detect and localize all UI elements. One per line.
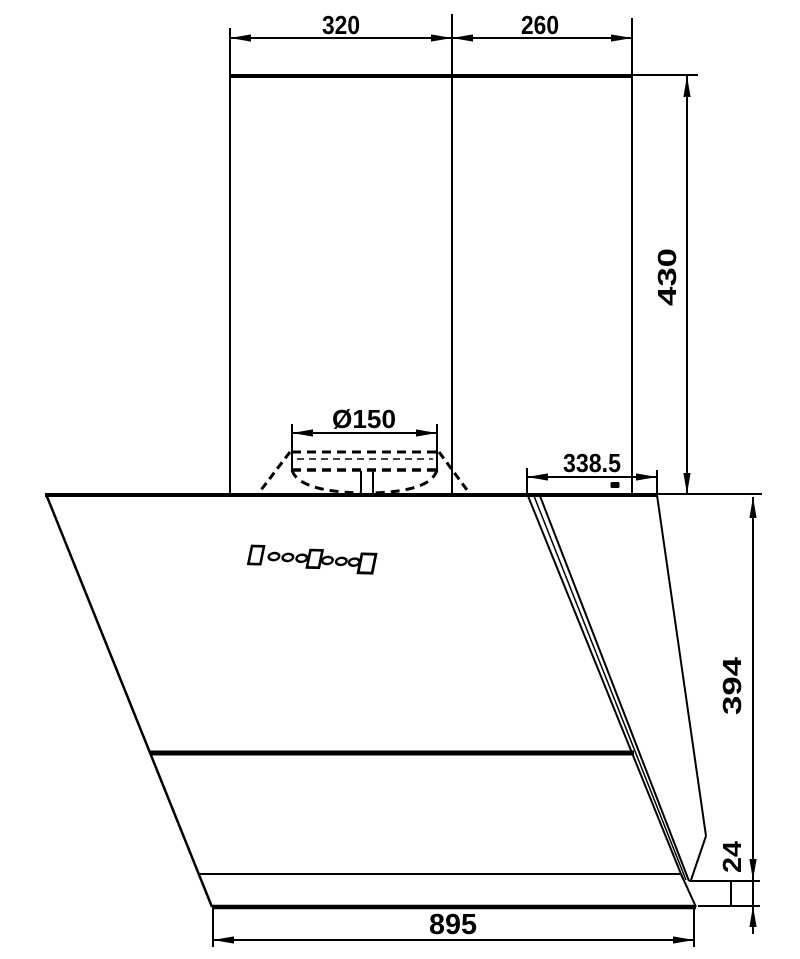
led-icon (282, 554, 294, 561)
hood-left-slant-edge (46, 494, 212, 907)
blower-scroll-dashed-arc (292, 470, 360, 493)
dim-label-24: 24 (717, 840, 747, 873)
base-outline (198, 874, 760, 907)
button-icon (248, 546, 264, 564)
led-icon (268, 553, 280, 560)
arrowhead-right-icon (416, 429, 437, 436)
dimension-duct-diameter: Ø150 (292, 404, 437, 472)
chimney-outline (230, 14, 698, 494)
duct-collar-hidden-lines (258, 452, 470, 494)
dim-label-895: 895 (429, 909, 477, 941)
arrowhead-right-icon (673, 936, 694, 943)
dimension-chimney-height: 430 (652, 76, 691, 494)
dim-label-duct: Ø150 (332, 404, 396, 434)
dim-label-338-5: 338.5 (563, 448, 621, 478)
drawing-canvas: 320 260 430 Ø150 338.5 (0, 0, 800, 959)
small-mark-icon (611, 482, 620, 488)
technical-drawing: 320 260 430 Ø150 338.5 (0, 0, 800, 959)
arrowhead-left-icon (527, 473, 548, 480)
glass-edge-line (534, 496, 686, 880)
glass-edge-line (540, 496, 689, 881)
dimension-overall-width: 895 (213, 909, 694, 947)
control-panel-icons (247, 546, 377, 573)
arrowhead-right-icon (611, 34, 632, 41)
collar-dashed-diagonal (258, 452, 290, 494)
arrowhead-right-icon (636, 473, 657, 480)
arrowhead-up-icon (683, 76, 690, 97)
collar-dashed-diagonal (439, 452, 470, 494)
hood-body-outline (45, 494, 762, 907)
arrowhead-up-icon (749, 497, 756, 518)
glass-edge-line (528, 496, 683, 879)
led-icon (296, 555, 308, 562)
arrowhead-up-icon (749, 906, 756, 927)
blower-scroll-dashed-arc (374, 470, 437, 493)
dimension-top-depth: 338.5 (527, 448, 657, 496)
arrowhead-down-icon (683, 473, 690, 494)
dim-label-430: 430 (652, 248, 682, 306)
hood-inner-right-edge-lower (691, 836, 706, 880)
arrowhead-left-icon (452, 34, 473, 41)
hood-inner-right-edge (657, 495, 706, 836)
button-icon (358, 554, 376, 573)
arrowhead-down-icon (749, 859, 756, 880)
dimension-chimney-widths: 320 260 (230, 10, 632, 42)
led-icon (322, 557, 334, 564)
dim-label-320: 320 (322, 10, 360, 40)
arrowhead-left-icon (213, 936, 234, 943)
arrowhead-right-icon (431, 34, 452, 41)
arrowhead-left-icon (230, 34, 251, 41)
arrowhead-left-icon (292, 429, 313, 436)
dimension-body-height: 394 24 (717, 497, 757, 934)
led-icon (335, 558, 347, 565)
dim-label-260: 260 (521, 10, 559, 40)
button-icon (307, 550, 323, 568)
dim-label-394: 394 (717, 656, 747, 715)
